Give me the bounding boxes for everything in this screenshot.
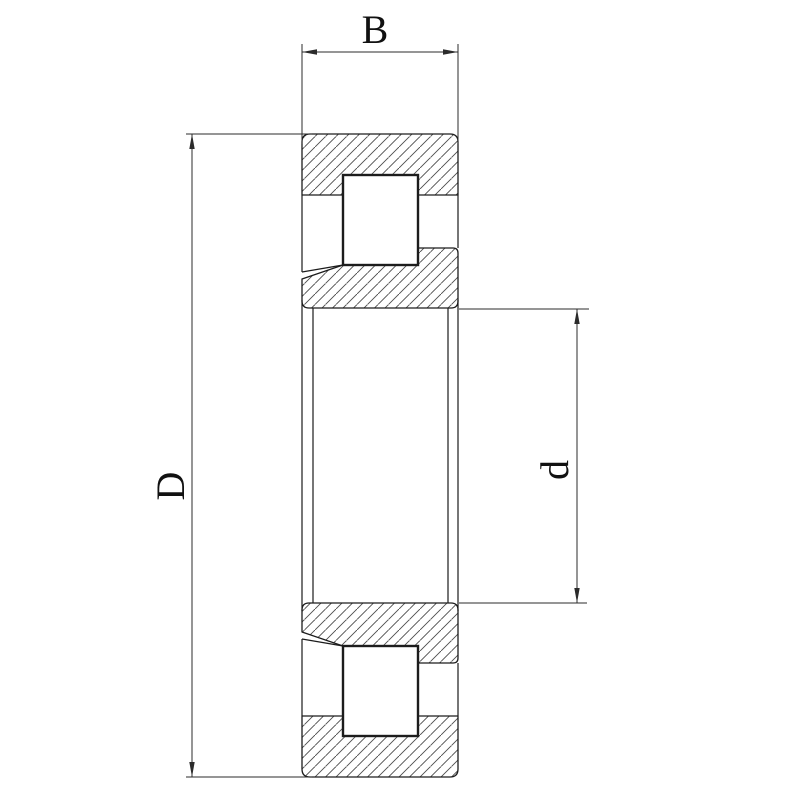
roller-lower (343, 646, 418, 736)
arrowhead-bottom (574, 588, 579, 603)
dimension-B: B (302, 7, 458, 144)
arrowhead-top (189, 134, 194, 149)
dimension-label-D: D (148, 472, 193, 501)
roller-upper (343, 175, 418, 265)
bearing-cross-section (302, 134, 458, 777)
arrowhead-left (302, 49, 317, 54)
bearing-drawing: B D d (0, 0, 800, 800)
dimension-label-d: d (532, 460, 577, 480)
arrowhead-top (574, 309, 579, 324)
bore-edge-lines (313, 308, 448, 603)
dimension-d: d (459, 309, 589, 603)
dimension-label-B: B (362, 7, 389, 52)
dimension-D: D (148, 134, 312, 777)
arrowhead-right (443, 49, 458, 54)
bearing-section-canvas: B D d (0, 0, 800, 800)
arrowhead-bottom (189, 762, 194, 777)
